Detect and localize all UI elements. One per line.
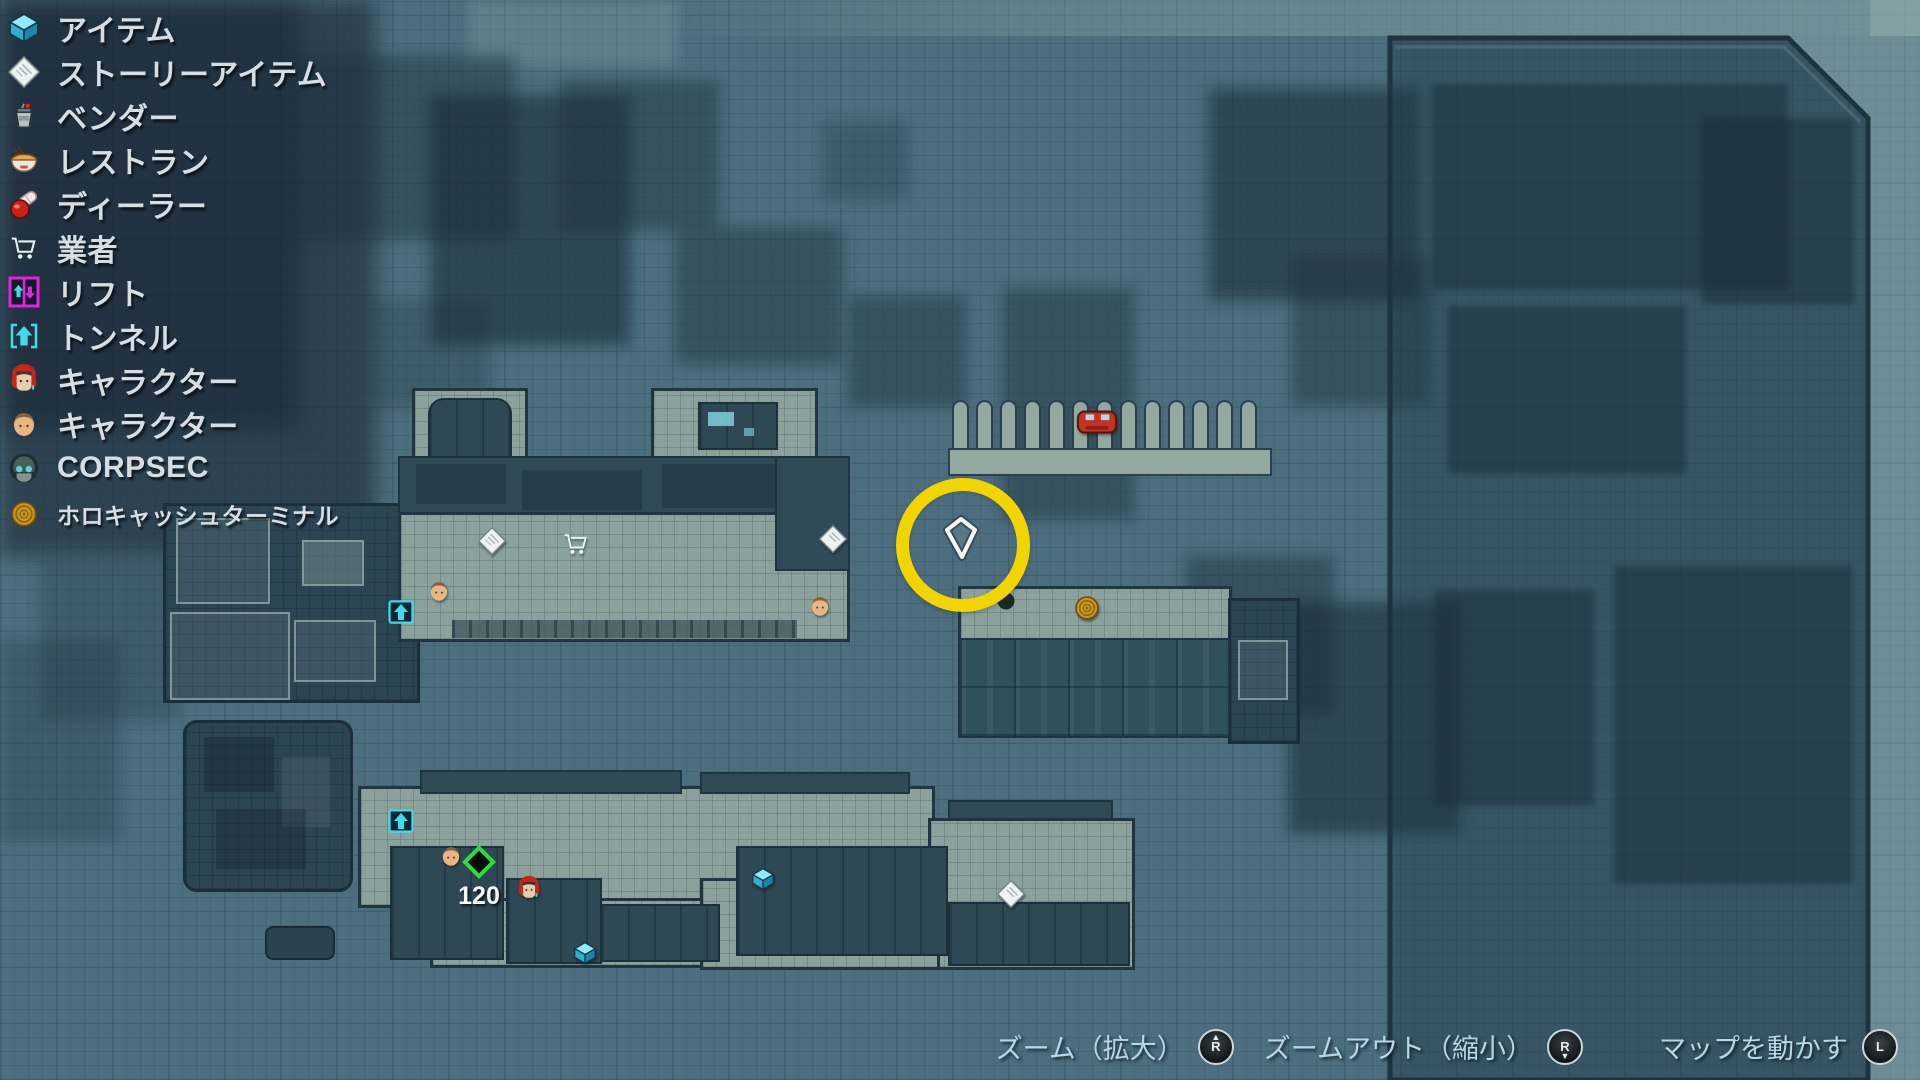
- bench-structure: [265, 926, 335, 960]
- structure-block: [1614, 566, 1852, 884]
- legend-item: 業者: [6, 228, 118, 268]
- story-item-marker: [996, 879, 1026, 909]
- game-map-screen: 120 アイテム ストーリーアイテム ベンダー レストラン ディ: [0, 0, 1920, 1080]
- vehicle-marker: [1076, 406, 1118, 438]
- annex-room: [1238, 640, 1288, 700]
- story-item-marker: [818, 524, 848, 554]
- story-item-icon: [6, 54, 42, 90]
- corpsec-icon: [6, 450, 42, 486]
- tunnel-marker: [386, 597, 416, 627]
- item-box-marker: [751, 868, 775, 890]
- building-a-machine: [698, 402, 778, 450]
- legend-item: ディーラー: [6, 184, 207, 224]
- zoom-in-label: ズーム（拡大）: [996, 1027, 1184, 1066]
- story-item-marker: [477, 526, 507, 556]
- building-c-roof: [948, 800, 1113, 820]
- character-male-marker: [426, 577, 452, 605]
- character-female-marker: [515, 875, 543, 903]
- tunnel-marker: [386, 806, 416, 836]
- character-male-icon: [6, 406, 42, 442]
- character-female-icon: [6, 362, 42, 398]
- building-a-walkway: [452, 620, 797, 638]
- right-stick-up-icon: ▲ R: [1198, 1029, 1234, 1065]
- zoom-out-label: ズームアウト（縮小）: [1264, 1027, 1533, 1066]
- objective-distance-label: 120: [458, 882, 500, 911]
- legend-item: アイテム: [6, 8, 176, 48]
- parking-base: [948, 448, 1272, 476]
- building-b-units: [958, 638, 1230, 738]
- right-stick-down-icon: R ▼: [1547, 1029, 1583, 1065]
- restaurant-icon: [6, 142, 42, 178]
- annex-room: [302, 540, 364, 586]
- building-c-roof: [700, 772, 910, 794]
- legend-item: ホロキャッシュターミナル: [6, 494, 339, 534]
- building-c-room: [600, 904, 720, 962]
- legend-item: リフト: [6, 272, 149, 312]
- legend-item: ベンダー: [6, 96, 179, 136]
- building-c-room: [736, 846, 948, 956]
- lift-icon: [6, 274, 42, 310]
- legend-item: ストーリーアイテム: [6, 52, 327, 92]
- character-male-marker: [807, 592, 833, 620]
- annex-room: [170, 612, 290, 700]
- structure-block: [1434, 590, 1594, 806]
- legend-item: キャラクター: [6, 404, 239, 444]
- bottom-left-annex: [183, 720, 353, 892]
- tunnel-icon: [6, 318, 42, 354]
- legend-item: レストラン: [6, 140, 210, 180]
- holocash-terminal-marker: [1074, 595, 1100, 621]
- move-map-label: マップを動かす: [1659, 1027, 1848, 1066]
- left-stick-icon: L: [1862, 1029, 1898, 1065]
- waypoint-pin: [938, 510, 984, 564]
- structure-block: [1702, 118, 1854, 304]
- trader-cart-marker: [562, 530, 590, 558]
- legend-item: CORPSEC: [6, 448, 209, 488]
- structure-block: [1448, 306, 1686, 474]
- holocash-terminal-icon: [6, 496, 42, 532]
- item-box-icon: [6, 10, 42, 46]
- vendor-icon: [6, 98, 42, 134]
- legend-item: キャラクター: [6, 360, 239, 400]
- item-box-marker: [573, 942, 597, 964]
- dealer-icon: [6, 186, 42, 222]
- annex-room: [294, 620, 376, 682]
- building-c-roof: [420, 770, 682, 794]
- building-c-room: [948, 902, 1130, 966]
- control-hints: ズーム（拡大） ▲ R ズームアウト（縮小） R ▼ マップを動かす L: [996, 1027, 1898, 1066]
- objective-diamond-marker: [461, 844, 497, 880]
- trader-cart-icon: [6, 230, 42, 266]
- legend-item: トンネル: [6, 316, 178, 356]
